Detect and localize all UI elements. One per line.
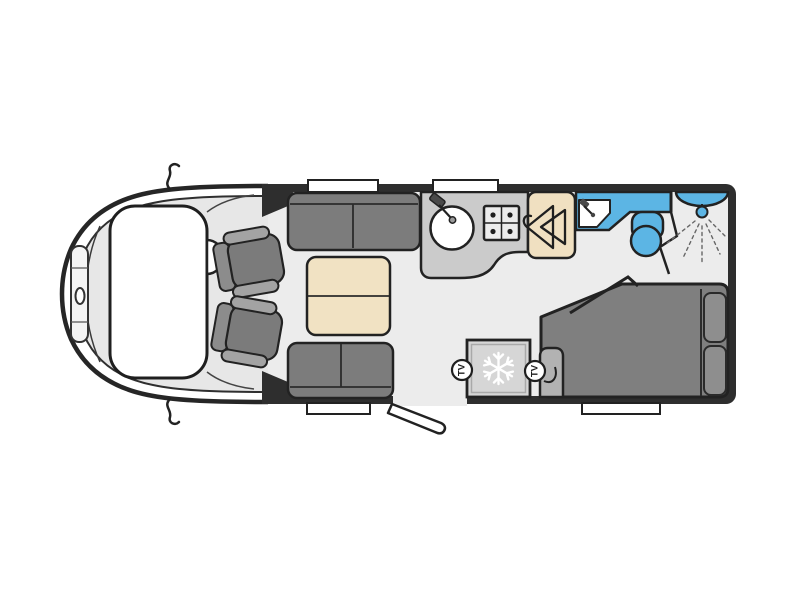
entry-doorway-gap [393,388,467,406]
entry-door-leaf [388,404,445,433]
lounge-table [307,257,390,335]
kitchen-sink [431,207,474,250]
window-lounge-bottom [307,403,370,414]
tv-point-label: TV [457,363,468,376]
tv-point: TV [452,360,472,380]
floorplan-canvas: TV TV [0,0,800,600]
window-kitchen [433,180,498,192]
pillow [704,346,726,395]
wing-mirror-bottom-icon [167,399,179,424]
wing-mirror-top-icon [167,164,179,189]
wardrobe [524,192,575,258]
window-bedroom [582,403,660,414]
fridge-freezer [467,340,530,397]
window-lounge-top [308,180,378,192]
tv-point-label: TV [530,364,541,377]
sofa-nearside [288,343,393,398]
front-badge [76,288,85,304]
sofa-offside [288,193,420,250]
pillow [704,293,726,342]
hob-icon [484,206,519,240]
toilet [631,212,663,256]
tv-point: TV [525,361,545,381]
shower-head-icon [697,207,708,218]
windscreen [110,206,207,378]
